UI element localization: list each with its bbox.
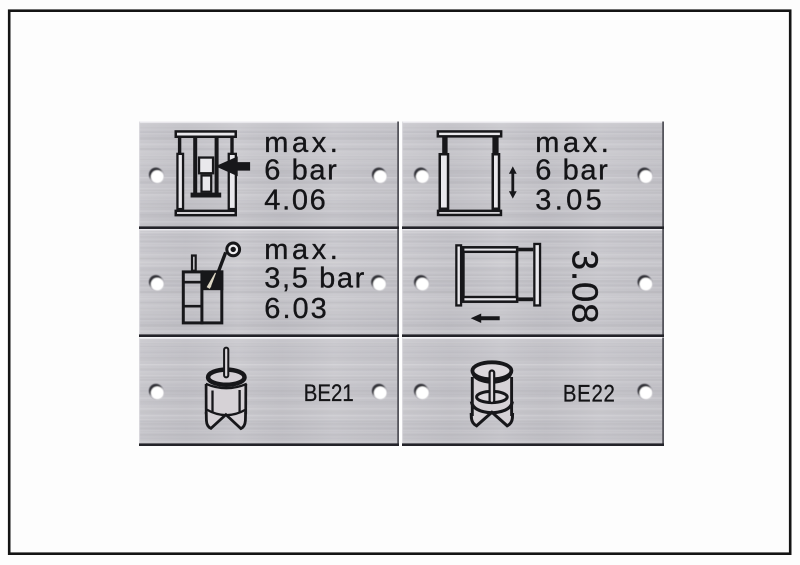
svg-text:BE22: BE22 [563, 380, 616, 407]
svg-text:3,5 bar: 3,5 bar [264, 263, 364, 295]
svg-text:BE21: BE21 [304, 380, 354, 407]
svg-text:6 bar: 6 bar [535, 155, 608, 187]
svg-text:4.06: 4.06 [264, 184, 326, 216]
svg-text:3.05: 3.05 [535, 184, 602, 216]
svg-text:6.03: 6.03 [264, 293, 327, 325]
svg-text:3.08: 3.08 [564, 250, 605, 325]
svg-text:6 bar: 6 bar [264, 155, 337, 187]
